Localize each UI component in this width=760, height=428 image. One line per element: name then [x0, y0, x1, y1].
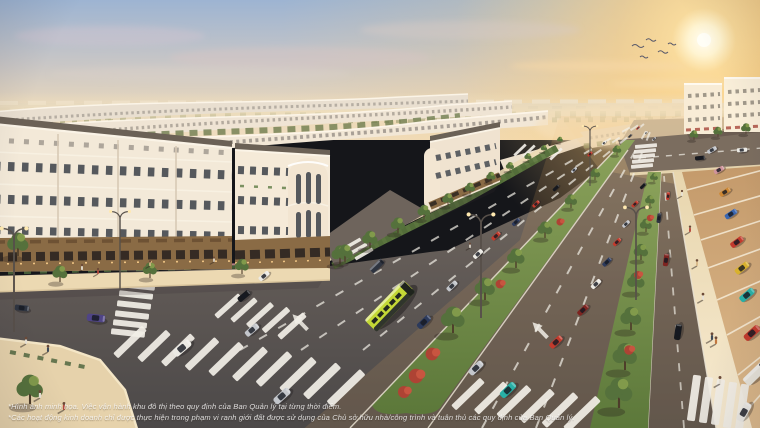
urban-masterplan-render: *Hình ảnh minh họa. Việc vận hành khu đô…	[0, 0, 760, 428]
vignette-overlay	[0, 0, 760, 428]
scene-canvas	[0, 0, 760, 428]
